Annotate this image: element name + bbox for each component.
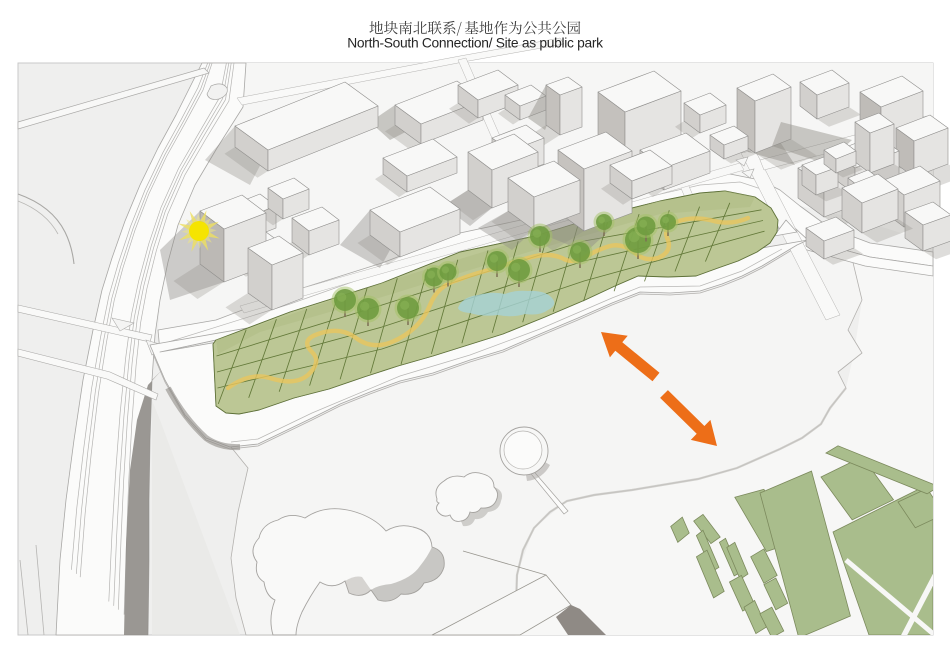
svg-text:North-South Connection/ Site a: North-South Connection/ Site as public p… xyxy=(347,36,603,51)
